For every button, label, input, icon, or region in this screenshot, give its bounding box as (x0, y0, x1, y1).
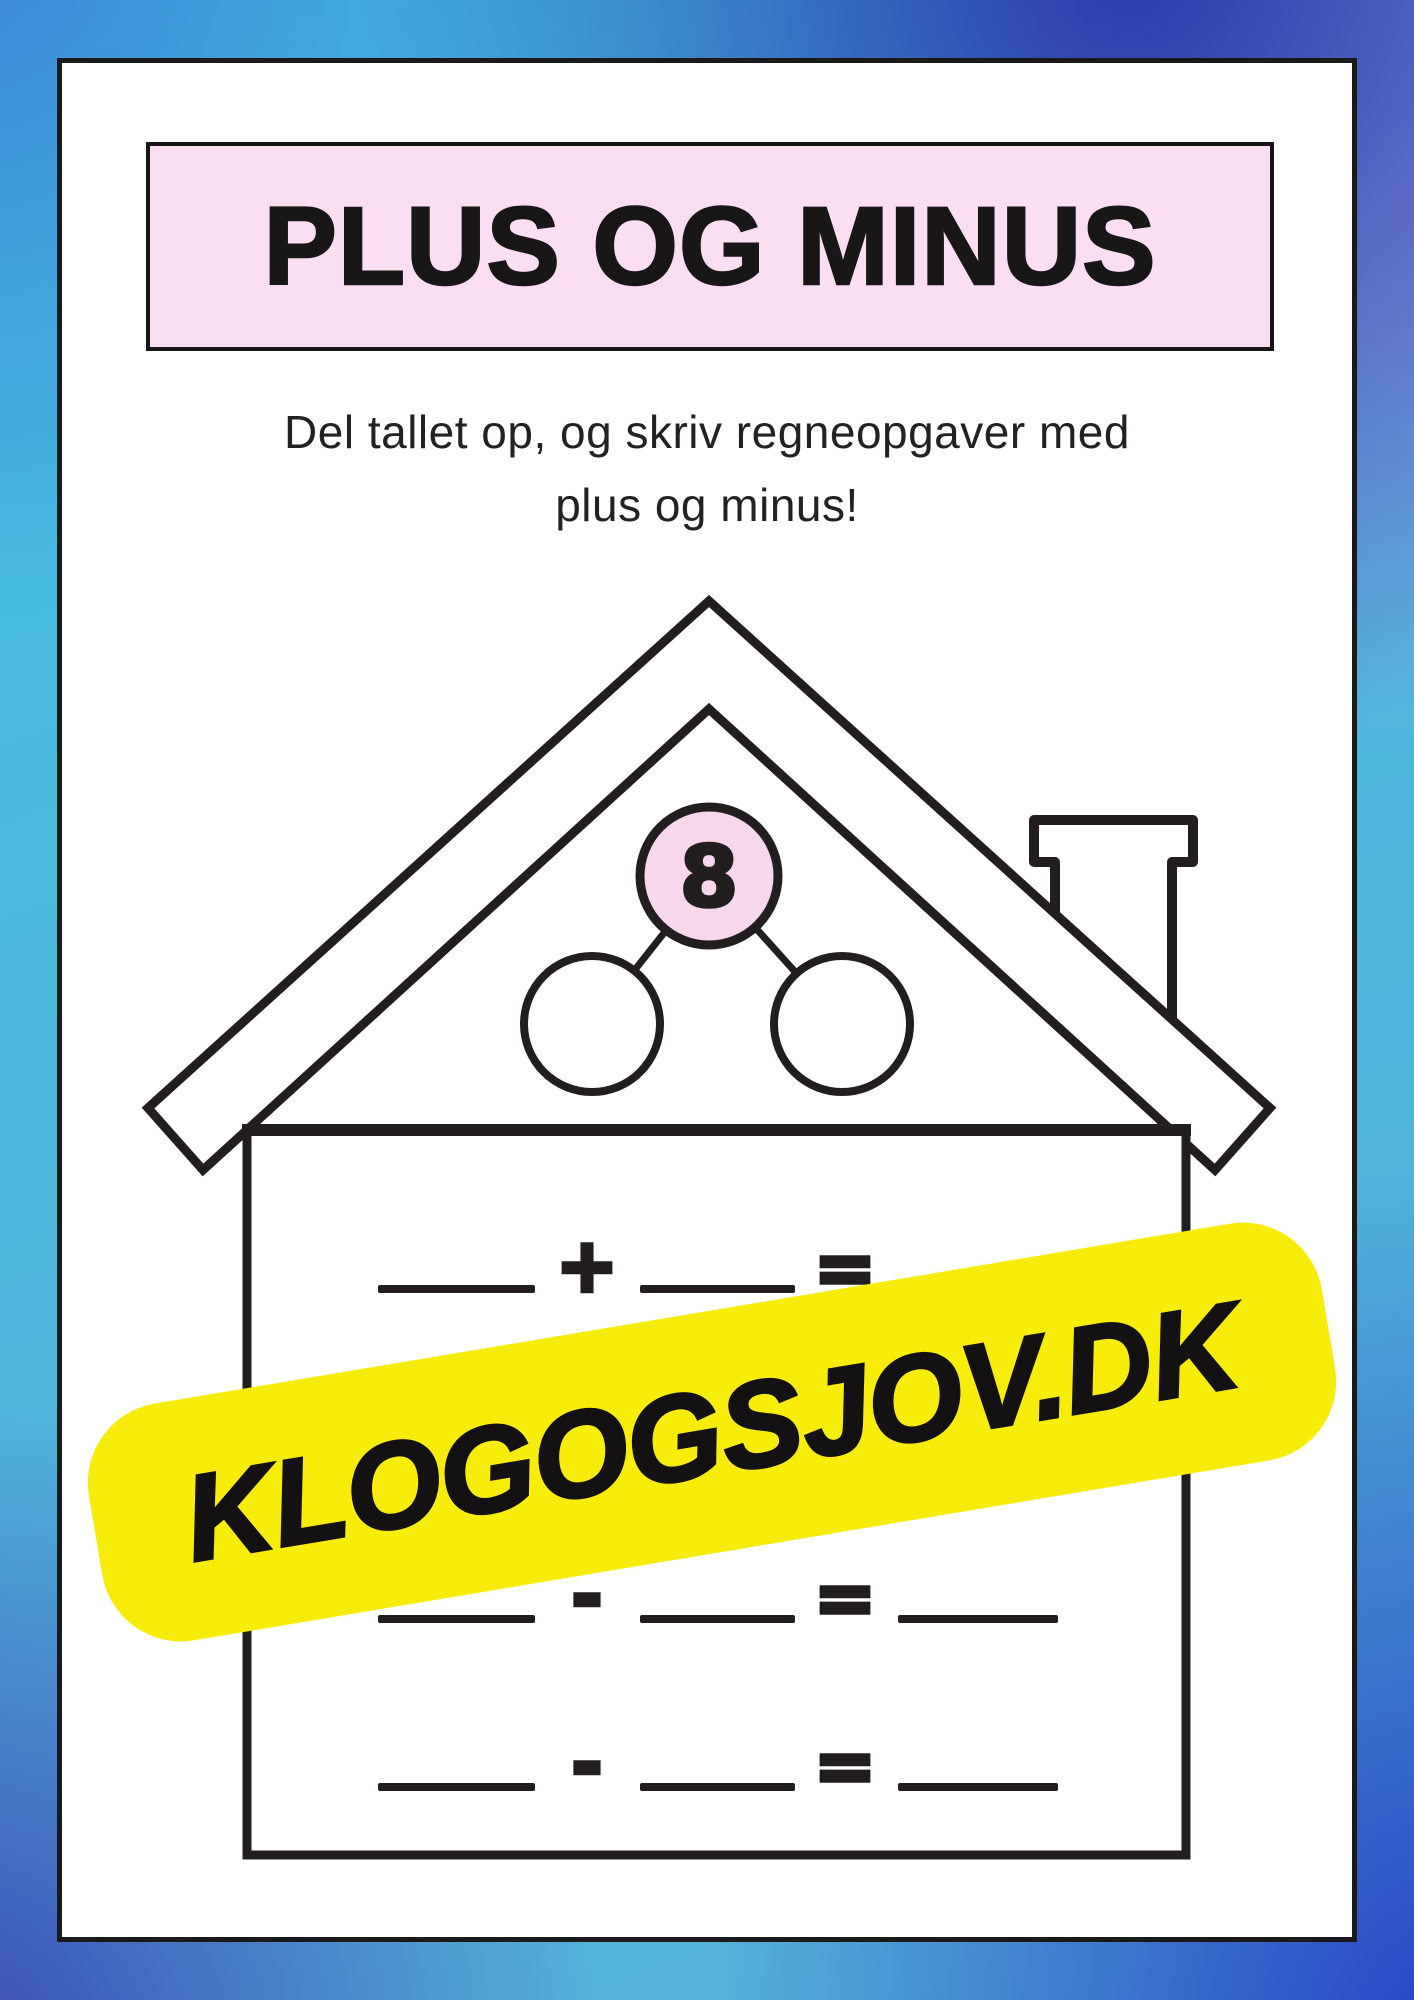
answer-blank[interactable] (640, 1285, 795, 1293)
operator-sign: - (572, 1721, 603, 1807)
equals-sign: = (814, 1555, 876, 1641)
worksheet-page: PLUS OG MINUS Del tallet op, og skriv re… (0, 0, 1414, 2000)
bond-part-circle-left[interactable] (524, 956, 660, 1092)
answer-blank[interactable] (378, 1783, 535, 1791)
answer-blank[interactable] (640, 1615, 795, 1623)
answer-blank[interactable] (898, 1615, 1058, 1623)
answer-blank[interactable] (378, 1615, 535, 1623)
answer-blank[interactable] (640, 1783, 795, 1791)
answer-blank[interactable] (898, 1783, 1058, 1791)
bond-total-number: 8 (680, 828, 738, 926)
answer-blank[interactable] (378, 1285, 535, 1293)
equals-sign: = (814, 1723, 876, 1809)
bond-part-circle-right[interactable] (774, 956, 910, 1092)
operator-sign: + (556, 1223, 618, 1309)
house-illustration: 8 + = - = - = (0, 0, 1414, 2000)
